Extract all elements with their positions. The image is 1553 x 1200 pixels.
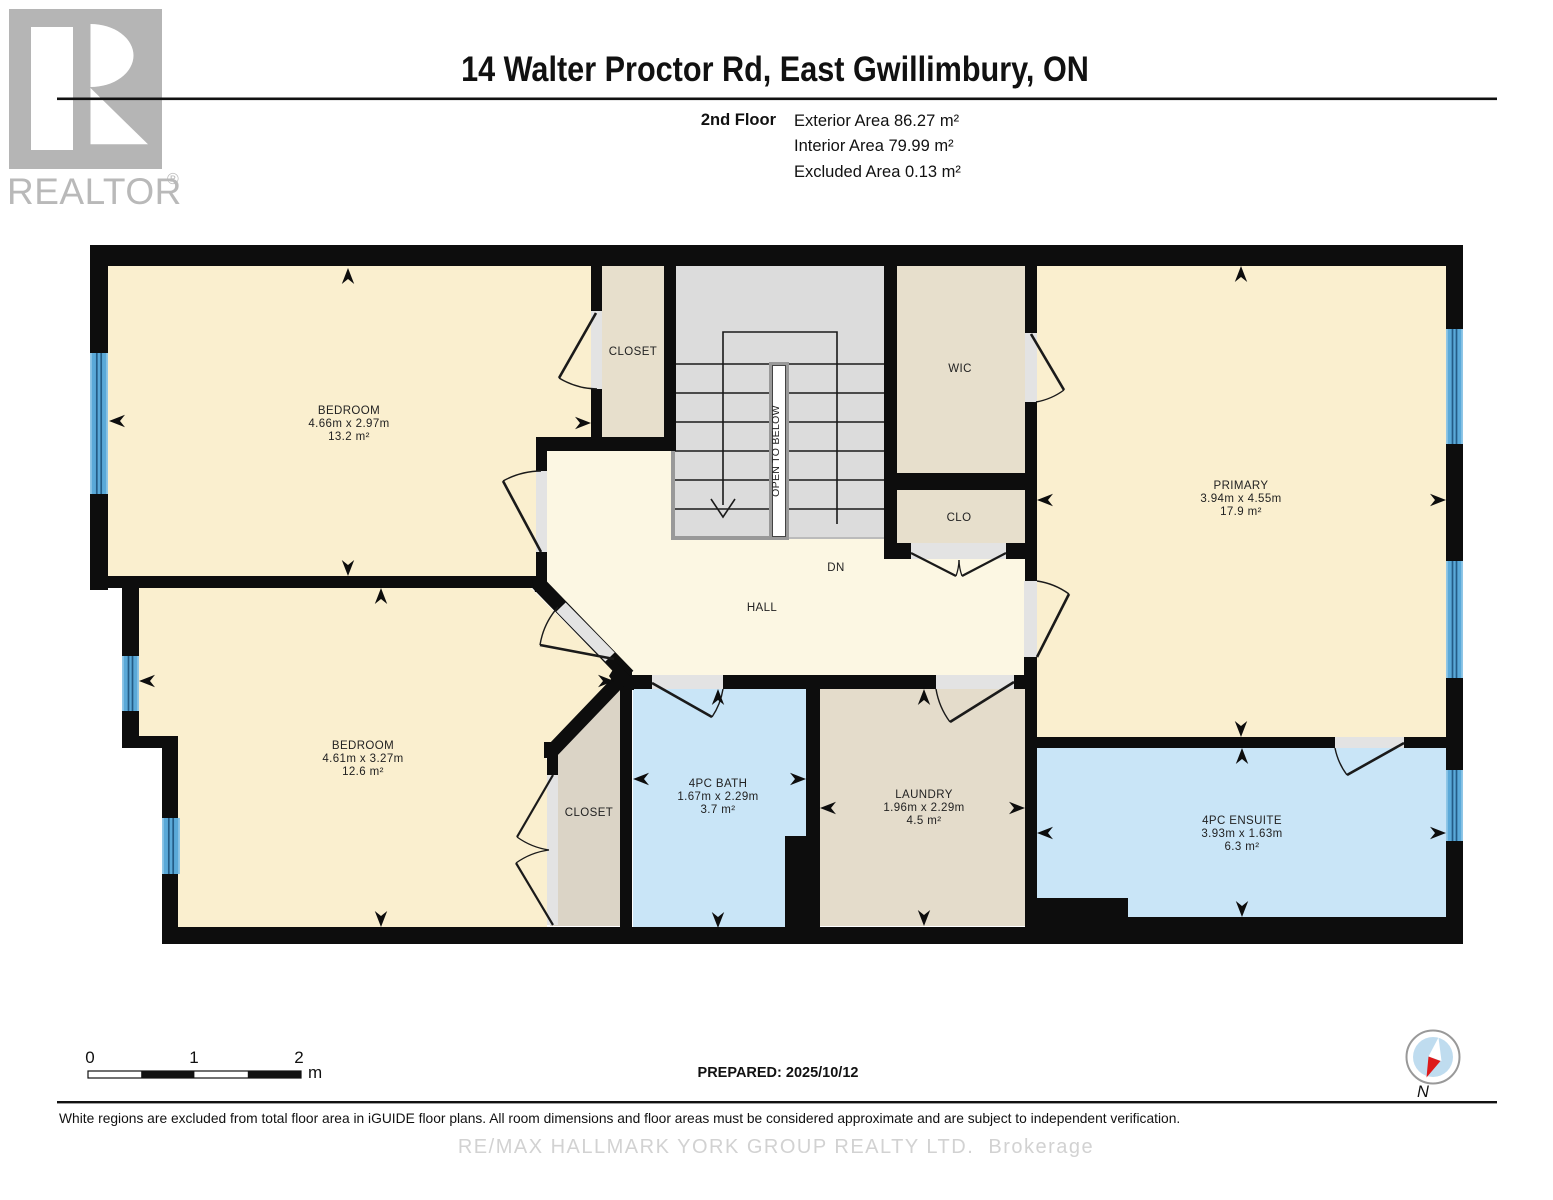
svg-text:13.2 m²: 13.2 m²	[328, 431, 370, 443]
svg-text:3.94m x 4.55m: 3.94m x 4.55m	[1200, 493, 1281, 505]
svg-text:White regions are excluded fro: White regions are excluded from total fl…	[59, 1111, 1180, 1126]
svg-text:1.67m x 2.29m: 1.67m x 2.29m	[677, 791, 758, 803]
svg-text:REALTOR: REALTOR	[7, 171, 182, 212]
svg-text:0: 0	[85, 1048, 94, 1067]
svg-text:BEDROOM: BEDROOM	[332, 740, 394, 752]
svg-text:BEDROOM: BEDROOM	[318, 405, 380, 417]
svg-text:4.61m x 3.27m: 4.61m x 3.27m	[322, 753, 403, 765]
svg-text:4PC ENSUITE: 4PC ENSUITE	[1202, 815, 1282, 827]
svg-text:3.7 m²: 3.7 m²	[701, 804, 736, 816]
svg-text:1: 1	[189, 1048, 198, 1067]
svg-text:N: N	[1417, 1083, 1429, 1101]
svg-text:RE/MAX HALLMARK YORK GROUP REA: RE/MAX HALLMARK YORK GROUP REALTY LTD. B…	[458, 1136, 1094, 1158]
svg-text:2nd Floor: 2nd Floor	[701, 111, 777, 129]
svg-text:DN: DN	[827, 562, 844, 574]
svg-text:®: ®	[167, 171, 179, 188]
svg-text:CLOSET: CLOSET	[609, 346, 657, 358]
svg-text:LAUNDRY: LAUNDRY	[895, 789, 953, 801]
svg-text:Excluded Area 0.13 m²: Excluded Area 0.13 m²	[794, 163, 961, 181]
svg-text:4.5 m²: 4.5 m²	[907, 815, 942, 827]
svg-text:2: 2	[294, 1048, 303, 1067]
svg-text:14 Walter Proctor Rd, East Gwi: 14 Walter Proctor Rd, East Gwillimbury, …	[461, 49, 1089, 88]
svg-text:CLO: CLO	[947, 512, 972, 524]
svg-text:WIC: WIC	[948, 363, 972, 375]
svg-text:17.9 m²: 17.9 m²	[1220, 506, 1262, 518]
svg-text:CLOSET: CLOSET	[565, 807, 613, 819]
svg-text:4.66m x 2.97m: 4.66m x 2.97m	[308, 418, 389, 430]
svg-text:4PC BATH: 4PC BATH	[689, 778, 748, 790]
svg-text:PREPARED: 2025/10/12: PREPARED: 2025/10/12	[698, 1065, 859, 1081]
svg-text:3.93m x 1.63m: 3.93m x 1.63m	[1201, 828, 1282, 840]
svg-text:Interior Area 79.99 m²: Interior Area 79.99 m²	[794, 137, 954, 155]
svg-text:OPEN TO BELOW: OPEN TO BELOW	[770, 405, 782, 497]
svg-text:1.96m x 2.29m: 1.96m x 2.29m	[883, 802, 964, 814]
svg-text:PRIMARY: PRIMARY	[1214, 480, 1269, 492]
svg-text:Exterior Area 86.27 m²: Exterior Area 86.27 m²	[794, 112, 960, 130]
svg-text:6.3 m²: 6.3 m²	[1225, 841, 1260, 853]
svg-text:m: m	[308, 1063, 322, 1082]
svg-text:12.6 m²: 12.6 m²	[342, 766, 384, 778]
svg-text:HALL: HALL	[747, 602, 778, 614]
